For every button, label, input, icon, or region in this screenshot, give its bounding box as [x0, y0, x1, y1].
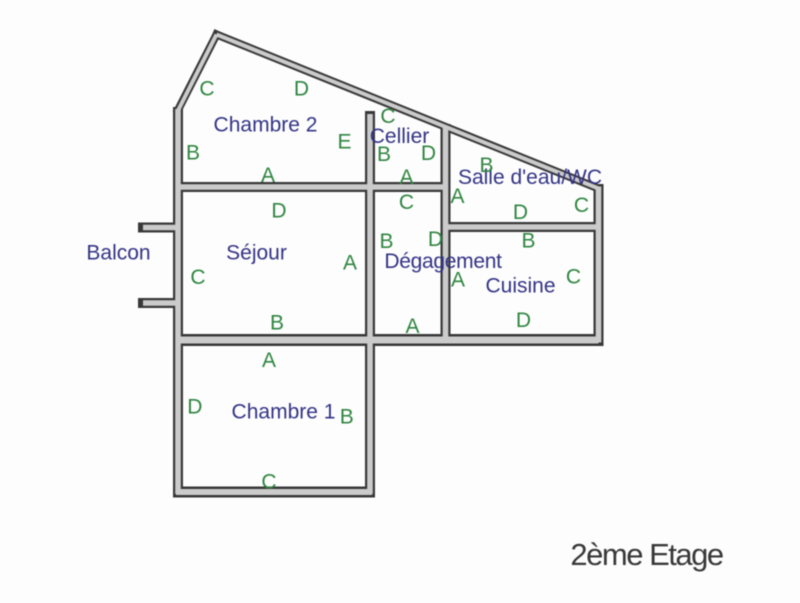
svg-text:D: D — [421, 142, 436, 165]
svg-text:D: D — [513, 201, 528, 224]
svg-text:A: A — [343, 252, 357, 275]
svg-text:B: B — [377, 143, 391, 166]
svg-text:B: B — [521, 230, 535, 253]
svg-text:A: A — [405, 315, 419, 338]
svg-text:C: C — [574, 194, 589, 217]
svg-text:C: C — [399, 191, 414, 214]
svg-text:B: B — [270, 312, 284, 335]
svg-text:Cuisine: Cuisine — [485, 275, 555, 298]
svg-text:C: C — [199, 78, 214, 101]
svg-text:C: C — [380, 105, 395, 128]
svg-text:A: A — [262, 349, 276, 372]
svg-text:A: A — [451, 269, 465, 292]
svg-text:D: D — [271, 200, 286, 223]
svg-text:B: B — [186, 142, 200, 165]
svg-text:Séjour: Séjour — [226, 242, 287, 265]
svg-text:C: C — [261, 471, 276, 494]
svg-text:2ème Etage: 2ème Etage — [570, 537, 722, 572]
svg-text:D: D — [294, 78, 309, 101]
svg-text:Chambre 2: Chambre 2 — [214, 114, 318, 137]
svg-text:A: A — [399, 166, 413, 189]
svg-text:D: D — [516, 309, 531, 332]
svg-text:C: C — [190, 266, 205, 289]
svg-text:A: A — [450, 185, 464, 208]
svg-text:B: B — [379, 230, 393, 253]
svg-text:B: B — [479, 154, 493, 177]
svg-text:E: E — [337, 131, 351, 154]
svg-text:D: D — [187, 396, 202, 419]
svg-text:B: B — [340, 406, 354, 429]
svg-text:D: D — [428, 228, 443, 251]
svg-text:Dégagement: Dégagement — [384, 250, 502, 273]
svg-text:Chambre 1: Chambre 1 — [232, 401, 336, 424]
svg-text:C: C — [566, 266, 581, 289]
svg-text:A: A — [261, 164, 275, 187]
svg-text:Balcon: Balcon — [86, 242, 150, 265]
